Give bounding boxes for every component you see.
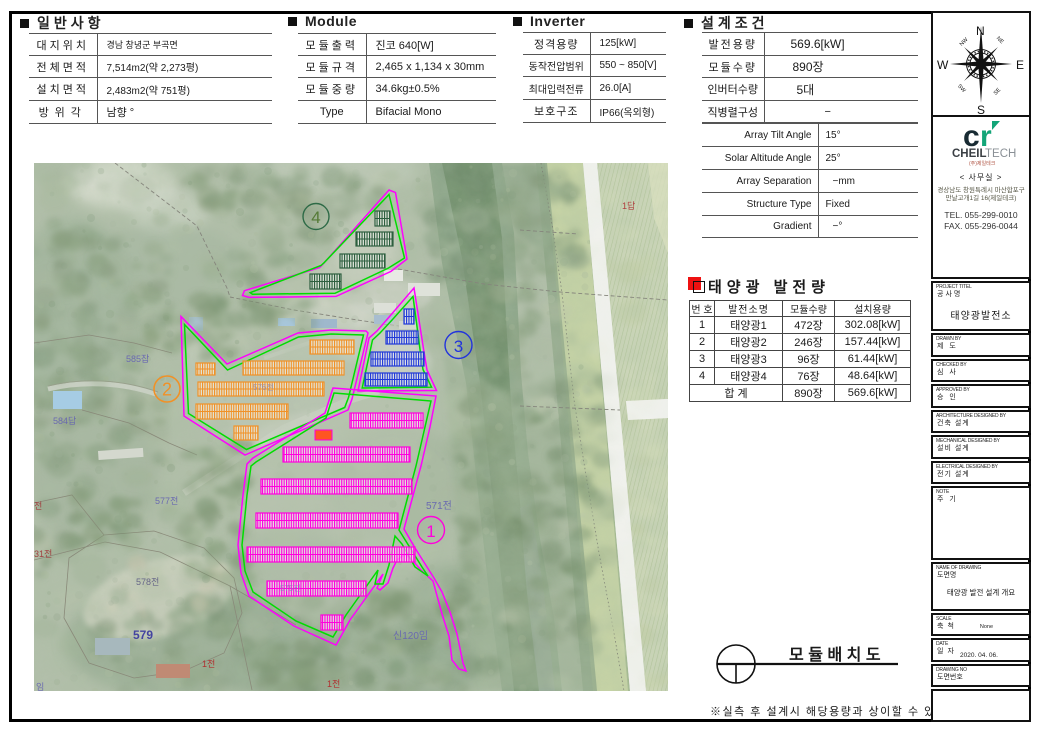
svg-text:4: 4	[311, 208, 320, 227]
svg-text:31전: 31전	[34, 549, 52, 559]
svg-text:1: 1	[426, 522, 435, 541]
svg-text:E: E	[1016, 58, 1024, 72]
svg-text:1전: 1전	[202, 659, 215, 669]
svg-text:2: 2	[162, 380, 172, 400]
svg-text:584답: 584답	[53, 415, 76, 426]
svg-text:임: 임	[36, 681, 44, 691]
svg-text:577전: 577전	[155, 496, 178, 506]
svg-text:(주)제일테크: (주)제일테크	[969, 160, 996, 167]
svg-text:585잡: 585잡	[126, 353, 149, 364]
svg-text:571전: 571전	[426, 500, 452, 512]
svg-text:578전: 578전	[136, 577, 159, 587]
svg-text:SW: SW	[956, 83, 967, 94]
svg-text:W: W	[937, 58, 949, 72]
svg-text:S: S	[977, 103, 985, 117]
svg-text:SE: SE	[993, 87, 1003, 97]
svg-text:NE: NE	[995, 36, 1005, 46]
svg-text:신120임: 신120임	[393, 629, 428, 642]
svg-text:1답: 1답	[622, 200, 635, 211]
svg-text:CHEIL: CHEIL	[952, 148, 987, 160]
svg-text:전: 전	[34, 501, 42, 511]
svg-text:NW: NW	[959, 36, 970, 47]
svg-text:579: 579	[133, 628, 153, 642]
svg-text:3: 3	[454, 337, 463, 356]
svg-text:576전: 576전	[253, 382, 274, 392]
svg-text:1전: 1전	[327, 679, 340, 689]
svg-text:575전: 575전	[280, 583, 301, 593]
svg-text:TECH: TECH	[985, 148, 1016, 160]
